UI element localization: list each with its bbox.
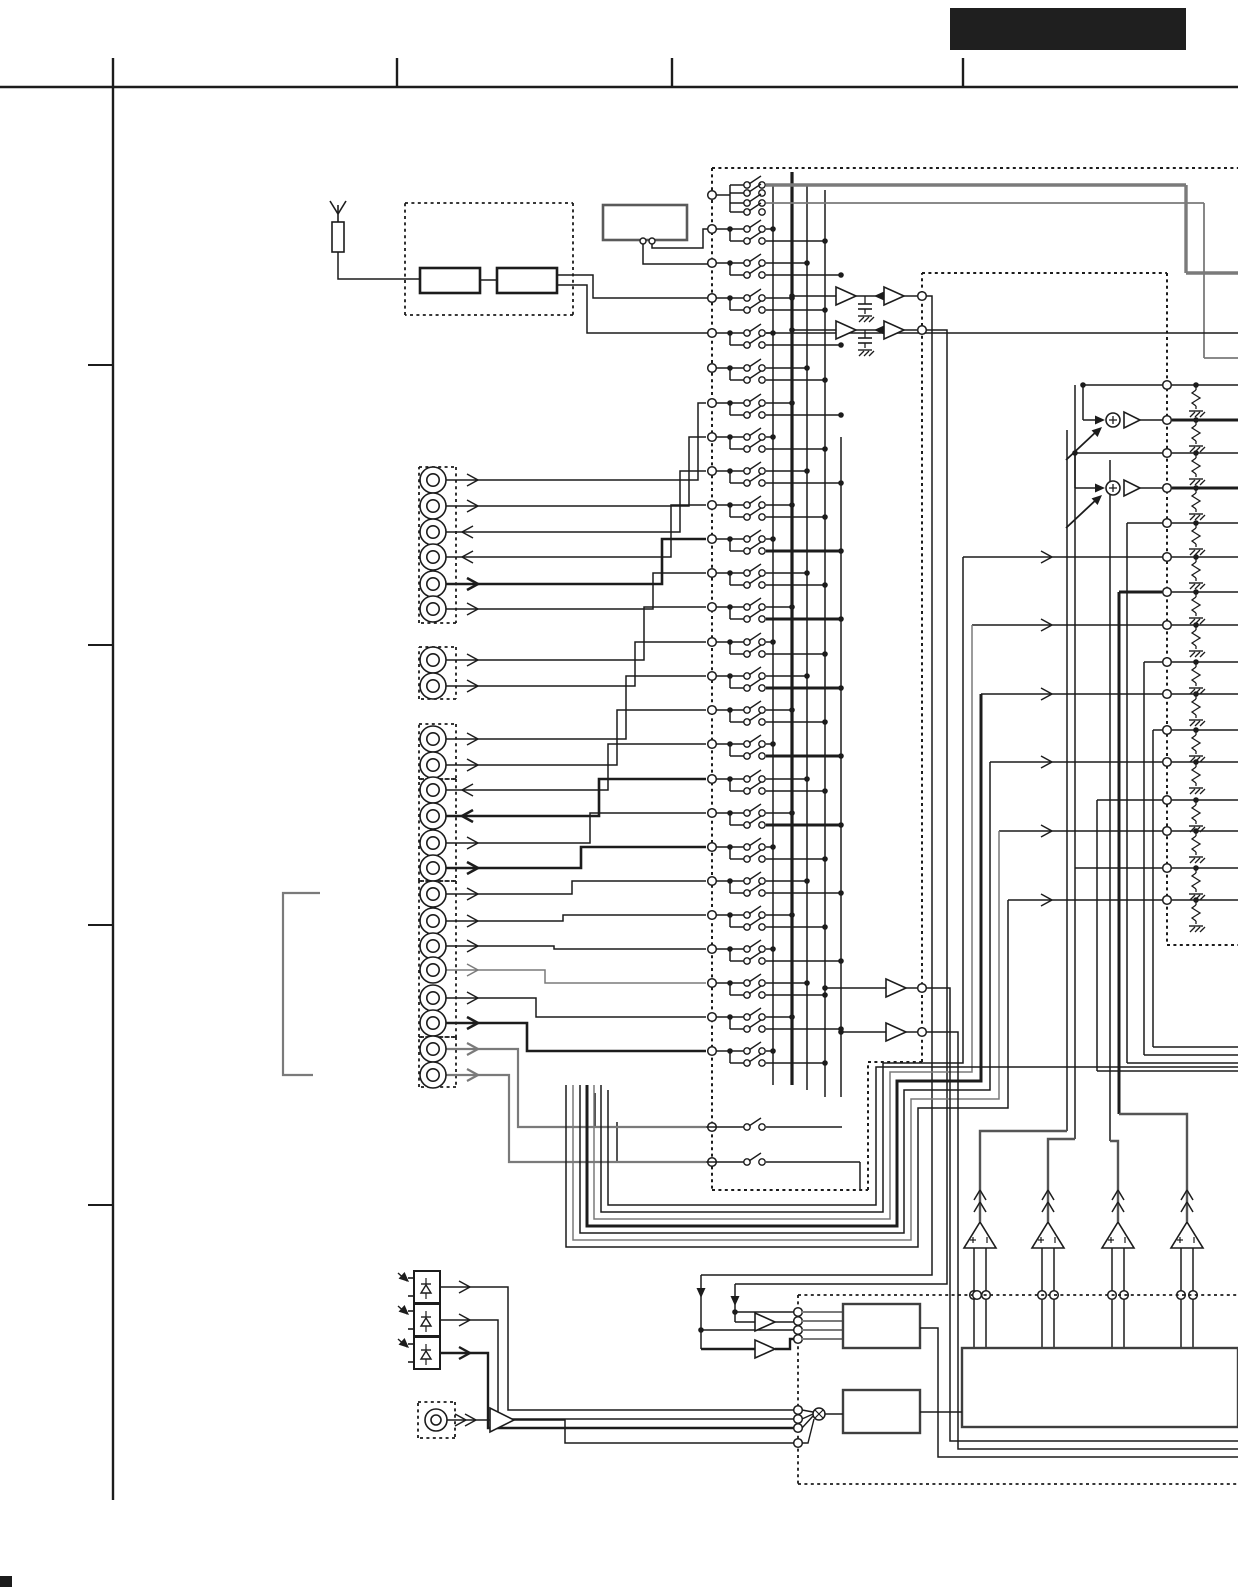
signal-bundle	[566, 557, 1238, 1247]
schematic-canvas	[0, 0, 1238, 1587]
schematic-page	[0, 0, 1238, 1587]
rca-jack-panel	[419, 403, 706, 1162]
power-amplifiers	[964, 1114, 1203, 1348]
title-block	[950, 8, 1186, 50]
antenna	[330, 201, 420, 279]
bracket-mark	[283, 893, 320, 1075]
output-terminal-panel	[963, 381, 1238, 1141]
system-control-boxes	[697, 1275, 1238, 1484]
preset-box	[603, 205, 708, 264]
input-selector-matrix	[595, 168, 1238, 1190]
